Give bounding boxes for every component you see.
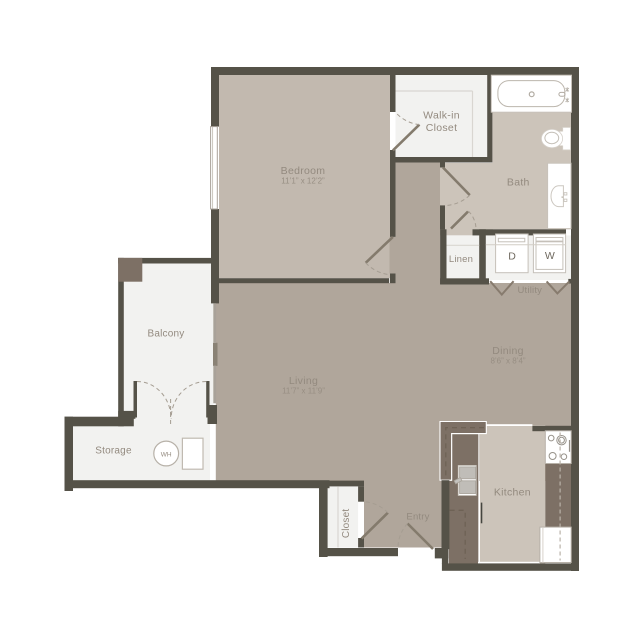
svg-text:Linen: Linen (449, 254, 473, 265)
svg-text:Living: Living (289, 375, 318, 387)
svg-text:11’1” x 12’2”: 11’1” x 12’2” (281, 177, 325, 186)
svg-text:Closet: Closet (341, 509, 352, 539)
svg-text:Closet: Closet (426, 122, 458, 134)
svg-text:8’6” x 8’4”: 8’6” x 8’4” (490, 357, 525, 366)
svg-text:11’7” x 11’9”: 11’7” x 11’9” (282, 387, 325, 396)
svg-text:Dining: Dining (492, 345, 524, 357)
svg-text:Storage: Storage (95, 446, 132, 457)
svg-text:Kitchen: Kitchen (494, 487, 531, 499)
svg-text:Walk-in: Walk-in (423, 110, 460, 122)
svg-text:W: W (545, 250, 555, 262)
svg-text:Bedroom: Bedroom (281, 165, 326, 177)
svg-text:Bath: Bath (507, 176, 530, 188)
svg-text:Utility: Utility (517, 285, 542, 296)
svg-text:WH: WH (161, 451, 172, 458)
svg-text:Balcony: Balcony (148, 329, 185, 340)
svg-text:D: D (508, 251, 516, 263)
svg-text:Entry: Entry (406, 511, 429, 522)
